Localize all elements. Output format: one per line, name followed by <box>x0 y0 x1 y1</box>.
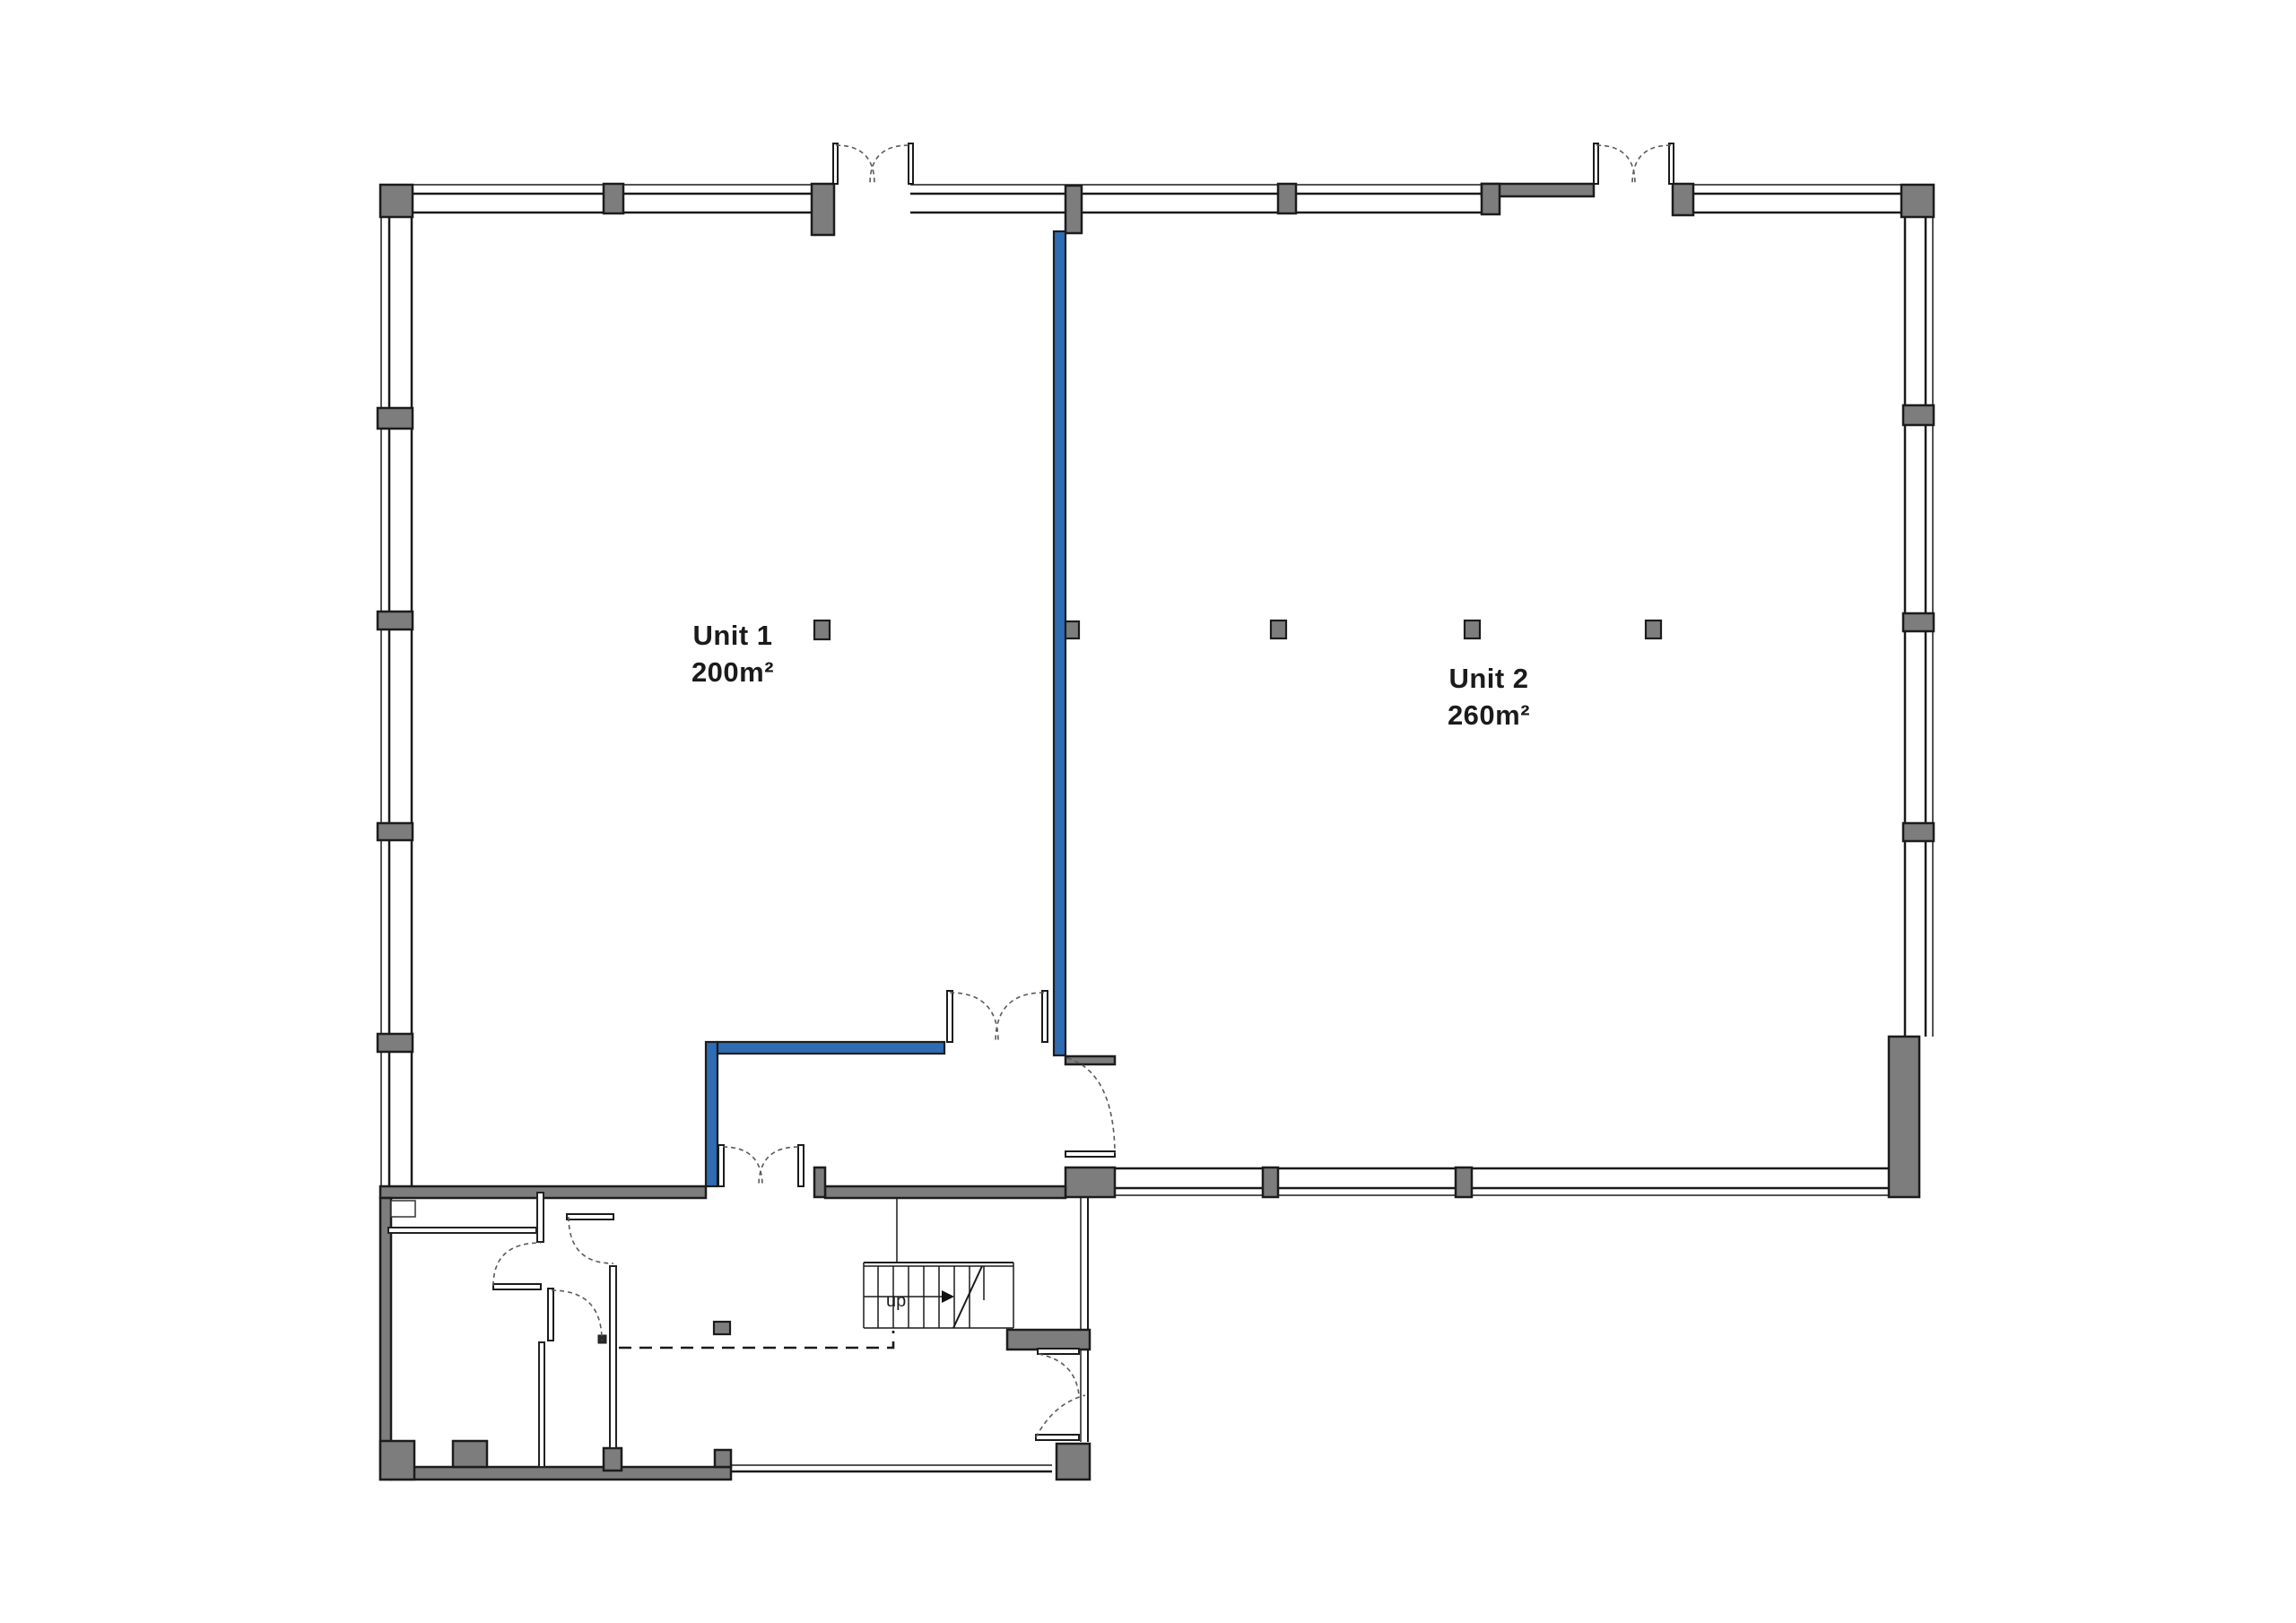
column <box>1271 621 1286 638</box>
plan-line <box>953 1266 982 1328</box>
demising-wall <box>706 1042 717 1186</box>
door-swing-arc <box>493 1243 541 1286</box>
column <box>1646 621 1661 638</box>
door-swing-arc <box>870 145 909 184</box>
door-leaf <box>798 1145 804 1186</box>
wall-segment <box>1278 184 1296 213</box>
wall-segment <box>814 1167 825 1197</box>
door-leaf <box>909 143 913 184</box>
partition-wall <box>537 1193 544 1242</box>
wall-segment <box>812 184 834 235</box>
wall-segment <box>1903 405 1934 425</box>
unit1-area: 200m² <box>625 654 840 690</box>
door-swing-arc <box>836 145 874 184</box>
up-arrow-head <box>942 1290 954 1303</box>
door-leaf <box>493 1284 541 1289</box>
door-swing-arc <box>723 1147 762 1186</box>
shaft-box <box>391 1201 415 1217</box>
door-swing-arc <box>1067 1058 1115 1153</box>
door-swing-arc <box>950 993 998 1042</box>
wall-segment <box>378 1034 413 1052</box>
wall-segment <box>1889 1037 1919 1197</box>
wall-segment <box>391 1467 731 1480</box>
wall-segment <box>1065 186 1082 233</box>
wall-segment <box>1456 1167 1472 1197</box>
wall-segment <box>1673 184 1693 215</box>
wall-segment <box>378 612 413 629</box>
door-leaf <box>1036 1435 1079 1440</box>
floor-plan: Unit 1 200m² Unit 2 260m² up <box>0 0 2296 1623</box>
wall-segment <box>1903 613 1934 631</box>
door-swing-arc <box>569 1217 613 1263</box>
stair-up-label: up <box>886 1291 922 1311</box>
wall-segment <box>378 823 413 840</box>
door-swing-arc <box>1036 1395 1085 1437</box>
wall-segment <box>825 1186 1065 1198</box>
wall-segment <box>380 1198 391 1480</box>
unit2-label: Unit 2 260m² <box>1381 660 1596 733</box>
door-swing-arc <box>1596 145 1635 184</box>
door-leaf <box>1038 1349 1079 1354</box>
wall-segment <box>1901 185 1934 217</box>
wall-segment <box>378 408 413 429</box>
partition-wall <box>610 1266 616 1448</box>
plan-canvas <box>0 0 2296 1623</box>
column <box>1065 621 1079 638</box>
unit2-name: Unit 2 <box>1381 660 1596 697</box>
demising-wall <box>1054 231 1065 1055</box>
partition-wall <box>388 1228 536 1233</box>
door-swing-arc <box>1039 1354 1079 1395</box>
unit1-name: Unit 1 <box>625 617 840 654</box>
wall-segment <box>1065 1056 1115 1064</box>
door-leaf <box>1594 143 1598 184</box>
unit2-area: 260m² <box>1381 697 1596 733</box>
wall-segment <box>1482 184 1500 214</box>
door-leaf <box>718 1145 724 1186</box>
door-leaf <box>947 991 952 1042</box>
door-leaf <box>1065 1151 1115 1157</box>
wall-stub <box>598 1335 606 1343</box>
door-leaf <box>548 1289 553 1341</box>
door-leaf <box>1042 991 1048 1042</box>
door-leaf <box>567 1214 613 1219</box>
door-leaf <box>1669 143 1674 184</box>
wall-segment <box>380 185 413 217</box>
door-swing-arc <box>552 1290 602 1341</box>
wall-segment <box>1007 1330 1090 1350</box>
partition-wall <box>539 1342 544 1467</box>
unit1-label: Unit 1 200m² <box>625 617 840 690</box>
demising-wall <box>717 1042 944 1054</box>
wall-segment <box>1263 1167 1278 1197</box>
door-swing-arc <box>759 1147 798 1186</box>
wall-segment <box>380 1441 414 1480</box>
wall-segment <box>604 184 623 213</box>
column <box>714 1322 730 1334</box>
column <box>1465 621 1480 638</box>
demise-dashed-line <box>619 1331 893 1348</box>
wall-segment <box>1903 823 1934 841</box>
door-swing-arc <box>996 993 1044 1042</box>
wall-segment <box>1065 1167 1115 1197</box>
wall-segment <box>715 1450 731 1467</box>
door-leaf <box>833 143 838 184</box>
door-swing-arc <box>1632 145 1671 184</box>
wall-segment <box>1057 1444 1090 1480</box>
wall-segment <box>453 1441 487 1467</box>
wall-segment <box>604 1448 622 1471</box>
